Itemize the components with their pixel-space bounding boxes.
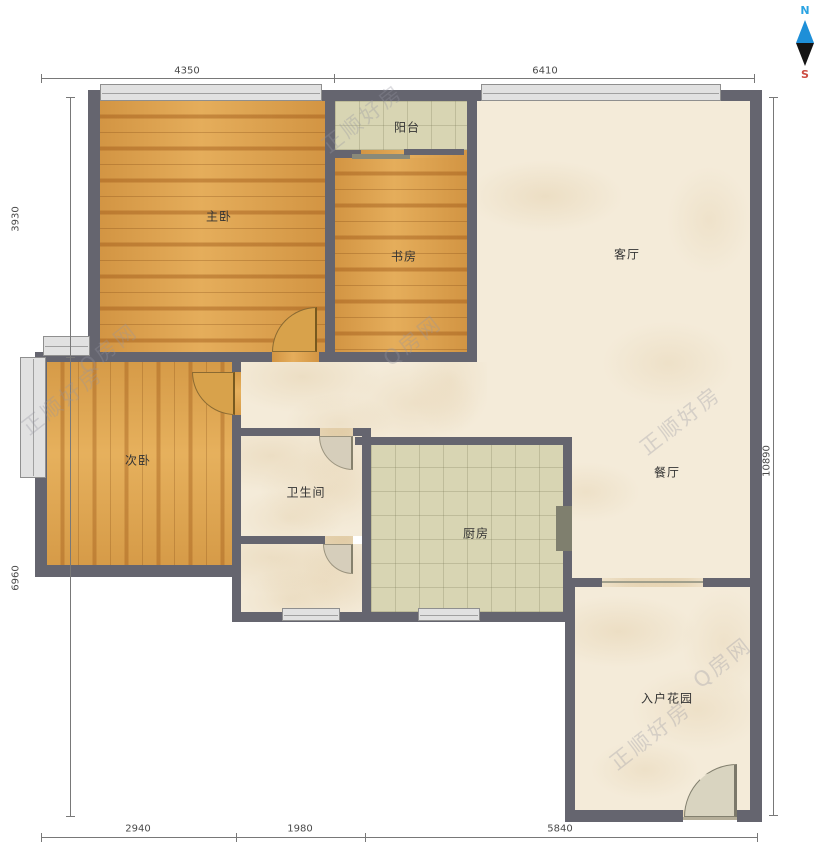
wall (355, 437, 572, 445)
dimension-tick (754, 74, 755, 83)
wall (35, 565, 240, 577)
door-sill (683, 817, 737, 820)
compass-south-label: S (788, 68, 822, 81)
wall (232, 536, 325, 544)
window (100, 84, 322, 101)
room-label-kitchen: 厨房 (463, 525, 489, 542)
dimension-tick (41, 833, 42, 842)
hallway-floor (241, 362, 487, 437)
dimension-bottom-1: 2940 (125, 824, 150, 835)
wall (362, 428, 371, 622)
dimension-line-bottom (41, 837, 758, 838)
window (418, 608, 480, 621)
dimension-tick (334, 74, 335, 83)
sliding-door-panel (404, 149, 464, 155)
dimension-tick (236, 833, 237, 842)
wall (88, 90, 100, 362)
wall (325, 90, 335, 362)
room-label-balcony: 阳台 (394, 119, 420, 136)
room-label-living-room: 客厅 (614, 246, 640, 263)
wall (565, 578, 575, 822)
dimension-tick (365, 833, 366, 842)
wall (232, 415, 241, 622)
opening-line (602, 581, 703, 583)
room-label-dining-room: 餐厅 (654, 464, 680, 481)
wall (750, 90, 762, 822)
room-label-master-bedroom: 主卧 (206, 208, 232, 225)
compass-south-arrow-icon (796, 43, 814, 66)
wall (565, 810, 683, 822)
dimension-tick (66, 816, 75, 817)
dimension-line-top (41, 78, 755, 79)
dimension-tick (757, 833, 758, 842)
window (282, 608, 340, 621)
wall (319, 352, 477, 362)
dimension-line-right (773, 97, 774, 816)
wall (232, 352, 241, 372)
doorway-floor (325, 536, 353, 544)
compass-north-label: N (788, 4, 822, 17)
window (481, 84, 721, 101)
dimension-right-1: 10890 (762, 445, 773, 477)
dimension-tick (66, 97, 75, 98)
doorway-floor (320, 428, 353, 436)
dimension-tick (769, 815, 778, 816)
room-label-study: 书房 (391, 248, 417, 265)
dimension-tick (66, 357, 75, 358)
room-label-second-bedroom: 次卧 (125, 452, 151, 469)
dimension-top-2: 6410 (532, 66, 557, 77)
room-label-entry-garden: 入户花园 (641, 690, 693, 707)
dimension-left-2: 6960 (11, 565, 22, 590)
dimension-line-left (70, 97, 71, 817)
compass: N S (788, 4, 822, 90)
dimension-left-1: 3930 (11, 206, 22, 231)
dimension-bottom-2: 1980 (287, 824, 312, 835)
compass-north-arrow-icon (796, 20, 814, 43)
dimension-tick (41, 74, 42, 83)
dimension-bottom-3: 5840 (547, 824, 572, 835)
wall (467, 90, 477, 362)
room-label-bathroom: 卫生间 (286, 484, 325, 501)
bay-window (43, 336, 90, 356)
doorway-floor (272, 352, 319, 362)
wall (232, 428, 320, 436)
dimension-top-1: 4350 (174, 66, 199, 77)
kitchen-service-door (556, 506, 572, 551)
sliding-door-panel (352, 154, 410, 159)
dimension-tick (769, 97, 778, 98)
window (20, 357, 46, 478)
floor-plan: 主卧 书房 阳台 客厅 次卧 卫生间 厨房 餐厅 入户花园 4350 6410 … (0, 0, 825, 854)
